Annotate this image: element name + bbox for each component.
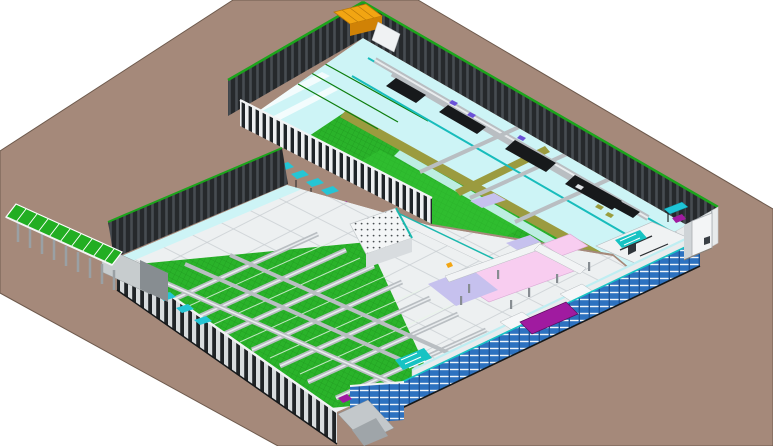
isometric-scene (0, 0, 773, 446)
bim-render-viewport (0, 0, 773, 446)
